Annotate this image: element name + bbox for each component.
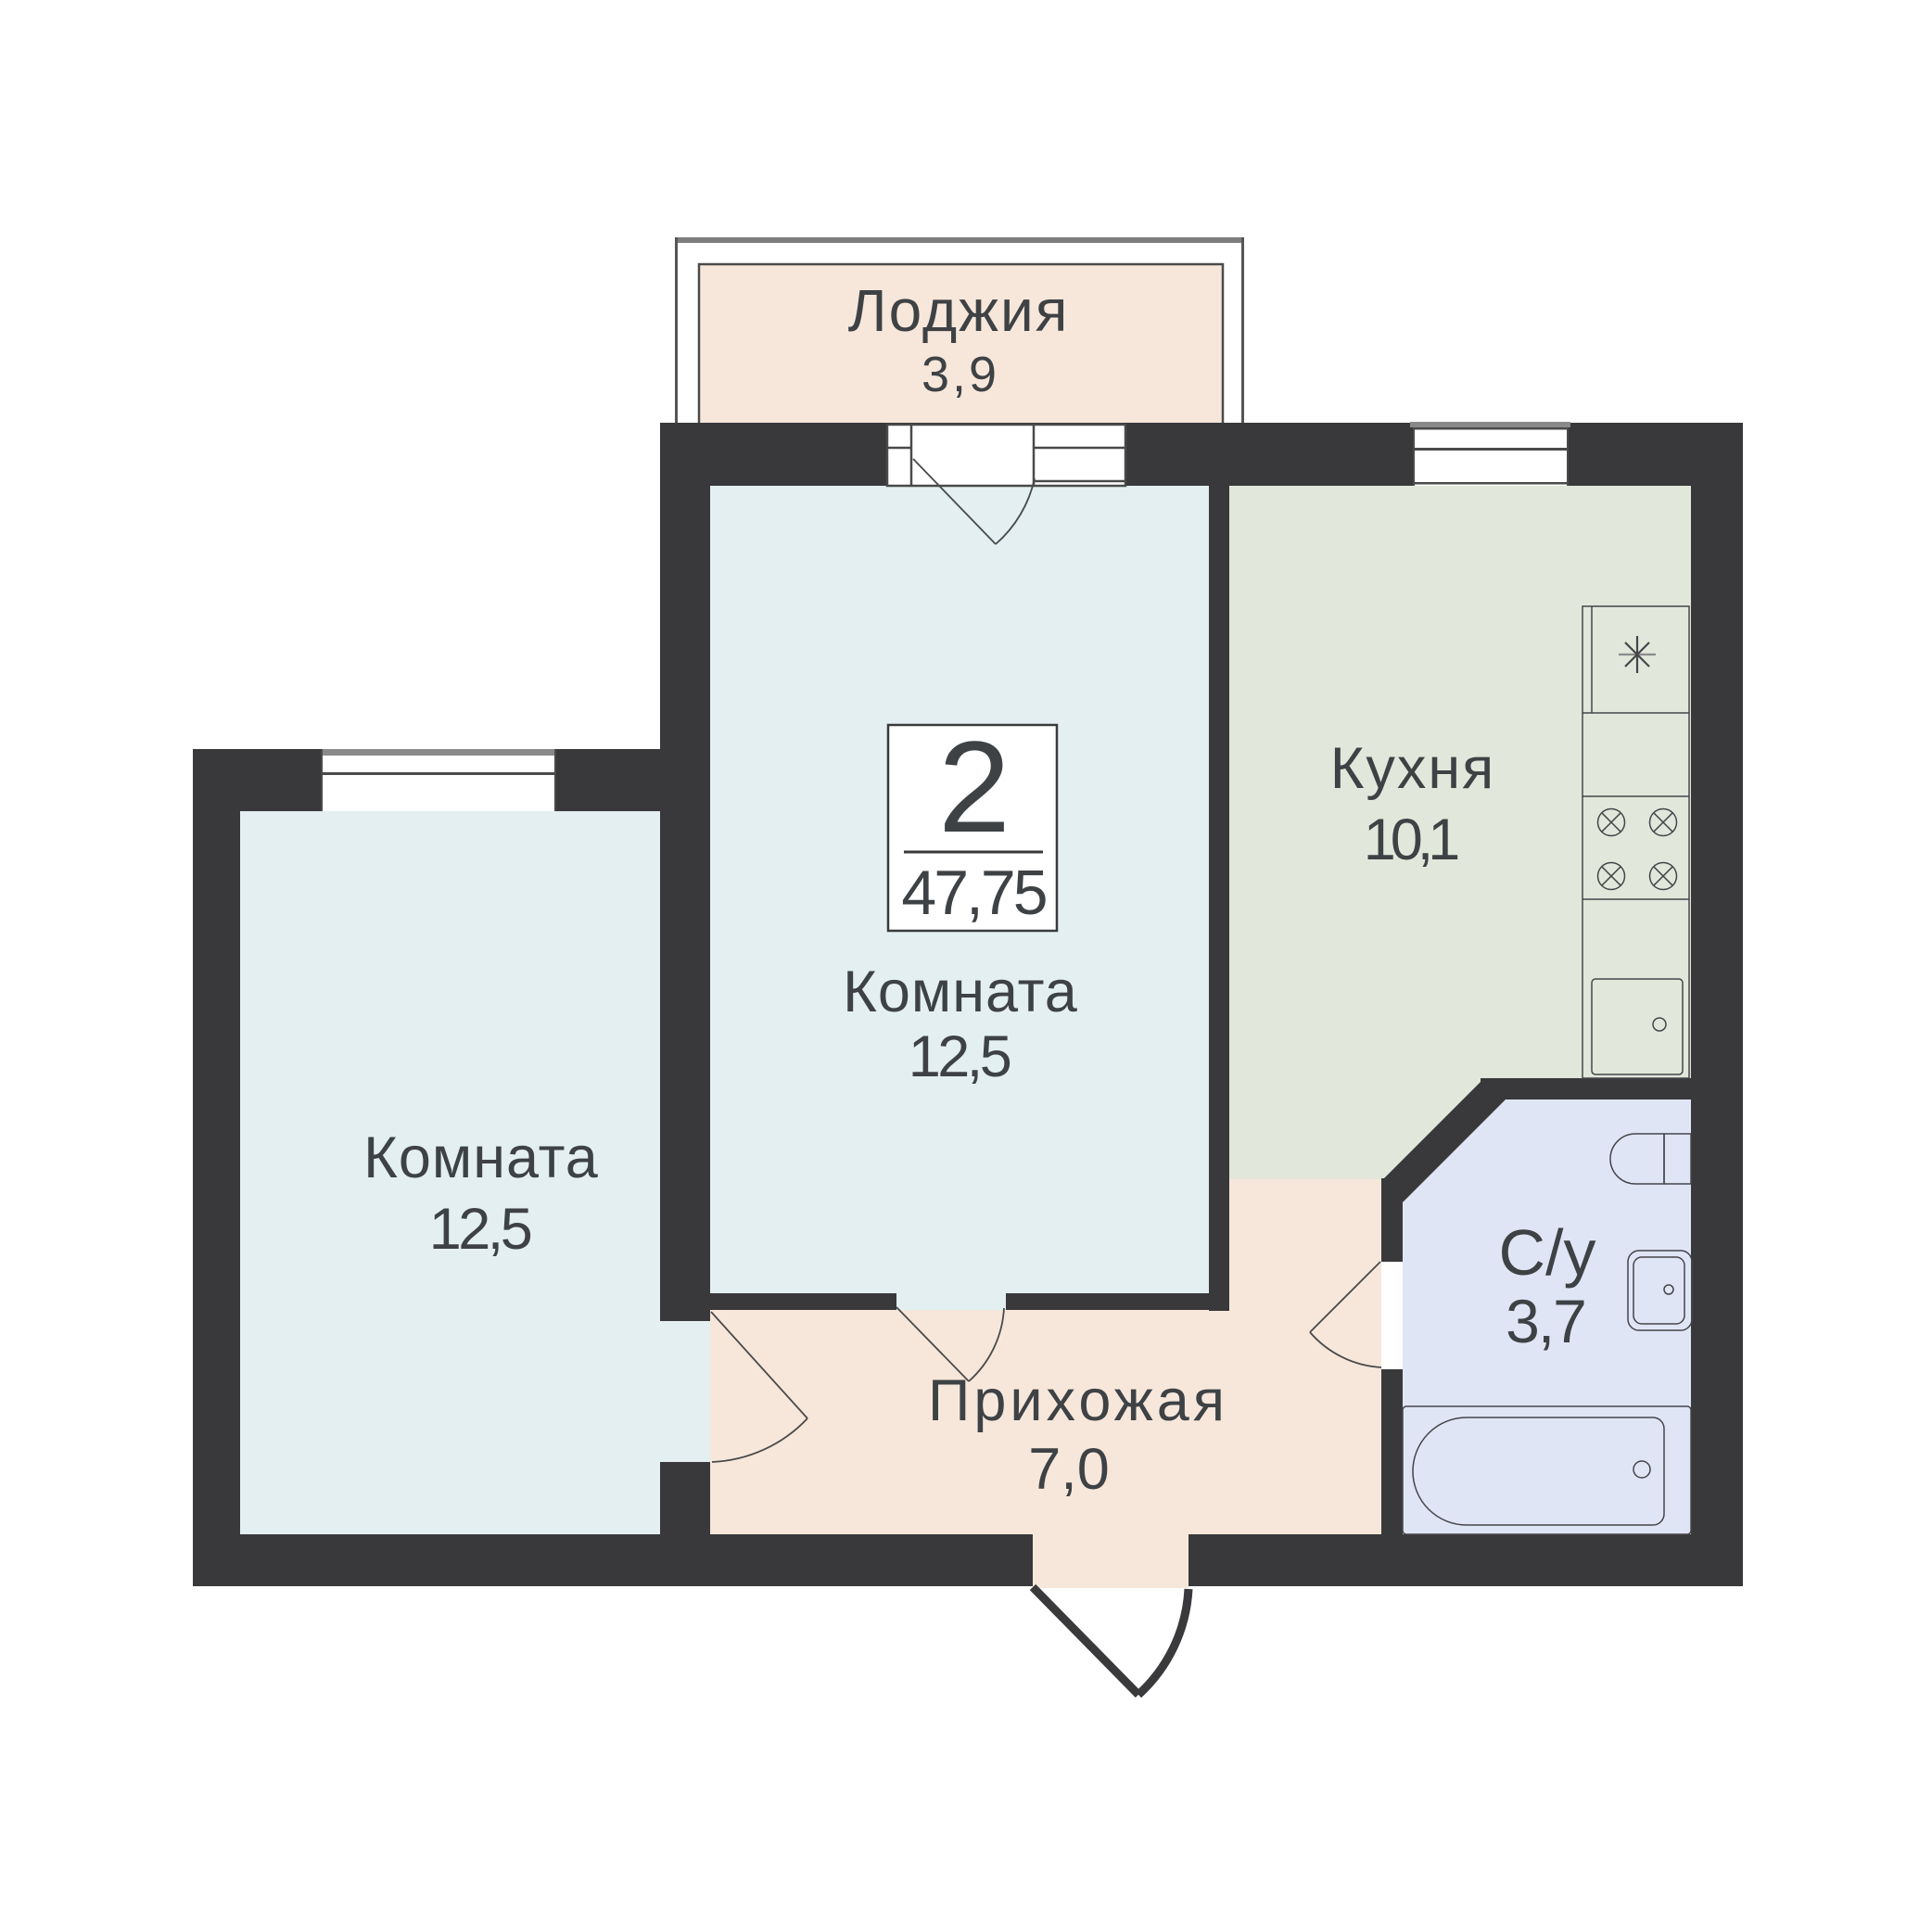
svg-text:3,9: 3,9 [922,347,999,402]
svg-text:Кухня: Кухня [1330,736,1496,801]
svg-text:12,5: 12,5 [909,1024,1010,1089]
svg-text:7,0: 7,0 [1028,1437,1110,1502]
svg-text:Комната: Комната [843,960,1078,1024]
svg-text:12,5: 12,5 [429,1197,531,1262]
svg-text:2: 2 [938,714,1010,859]
svg-text:3,7: 3,7 [1506,1287,1585,1355]
svg-text:Комната: Комната [363,1125,599,1190]
svg-text:47,75: 47,75 [901,858,1045,928]
svg-text:С/у: С/у [1499,1216,1596,1289]
svg-text:10,1: 10,1 [1364,807,1458,872]
svg-text:Лоджия: Лоджия [848,277,1070,344]
svg-text:Прихожая: Прихожая [928,1368,1228,1433]
